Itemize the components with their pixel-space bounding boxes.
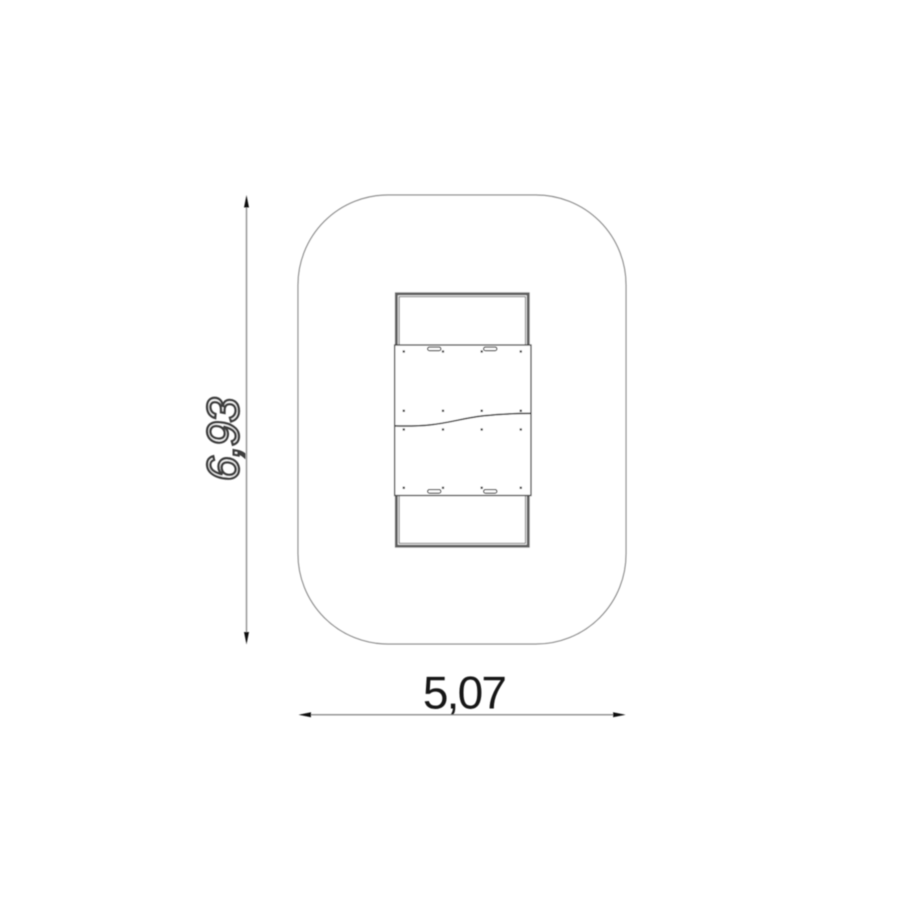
svg-text:5,07: 5,07 [423, 666, 506, 718]
svg-text:6,93: 6,93 [198, 398, 249, 482]
